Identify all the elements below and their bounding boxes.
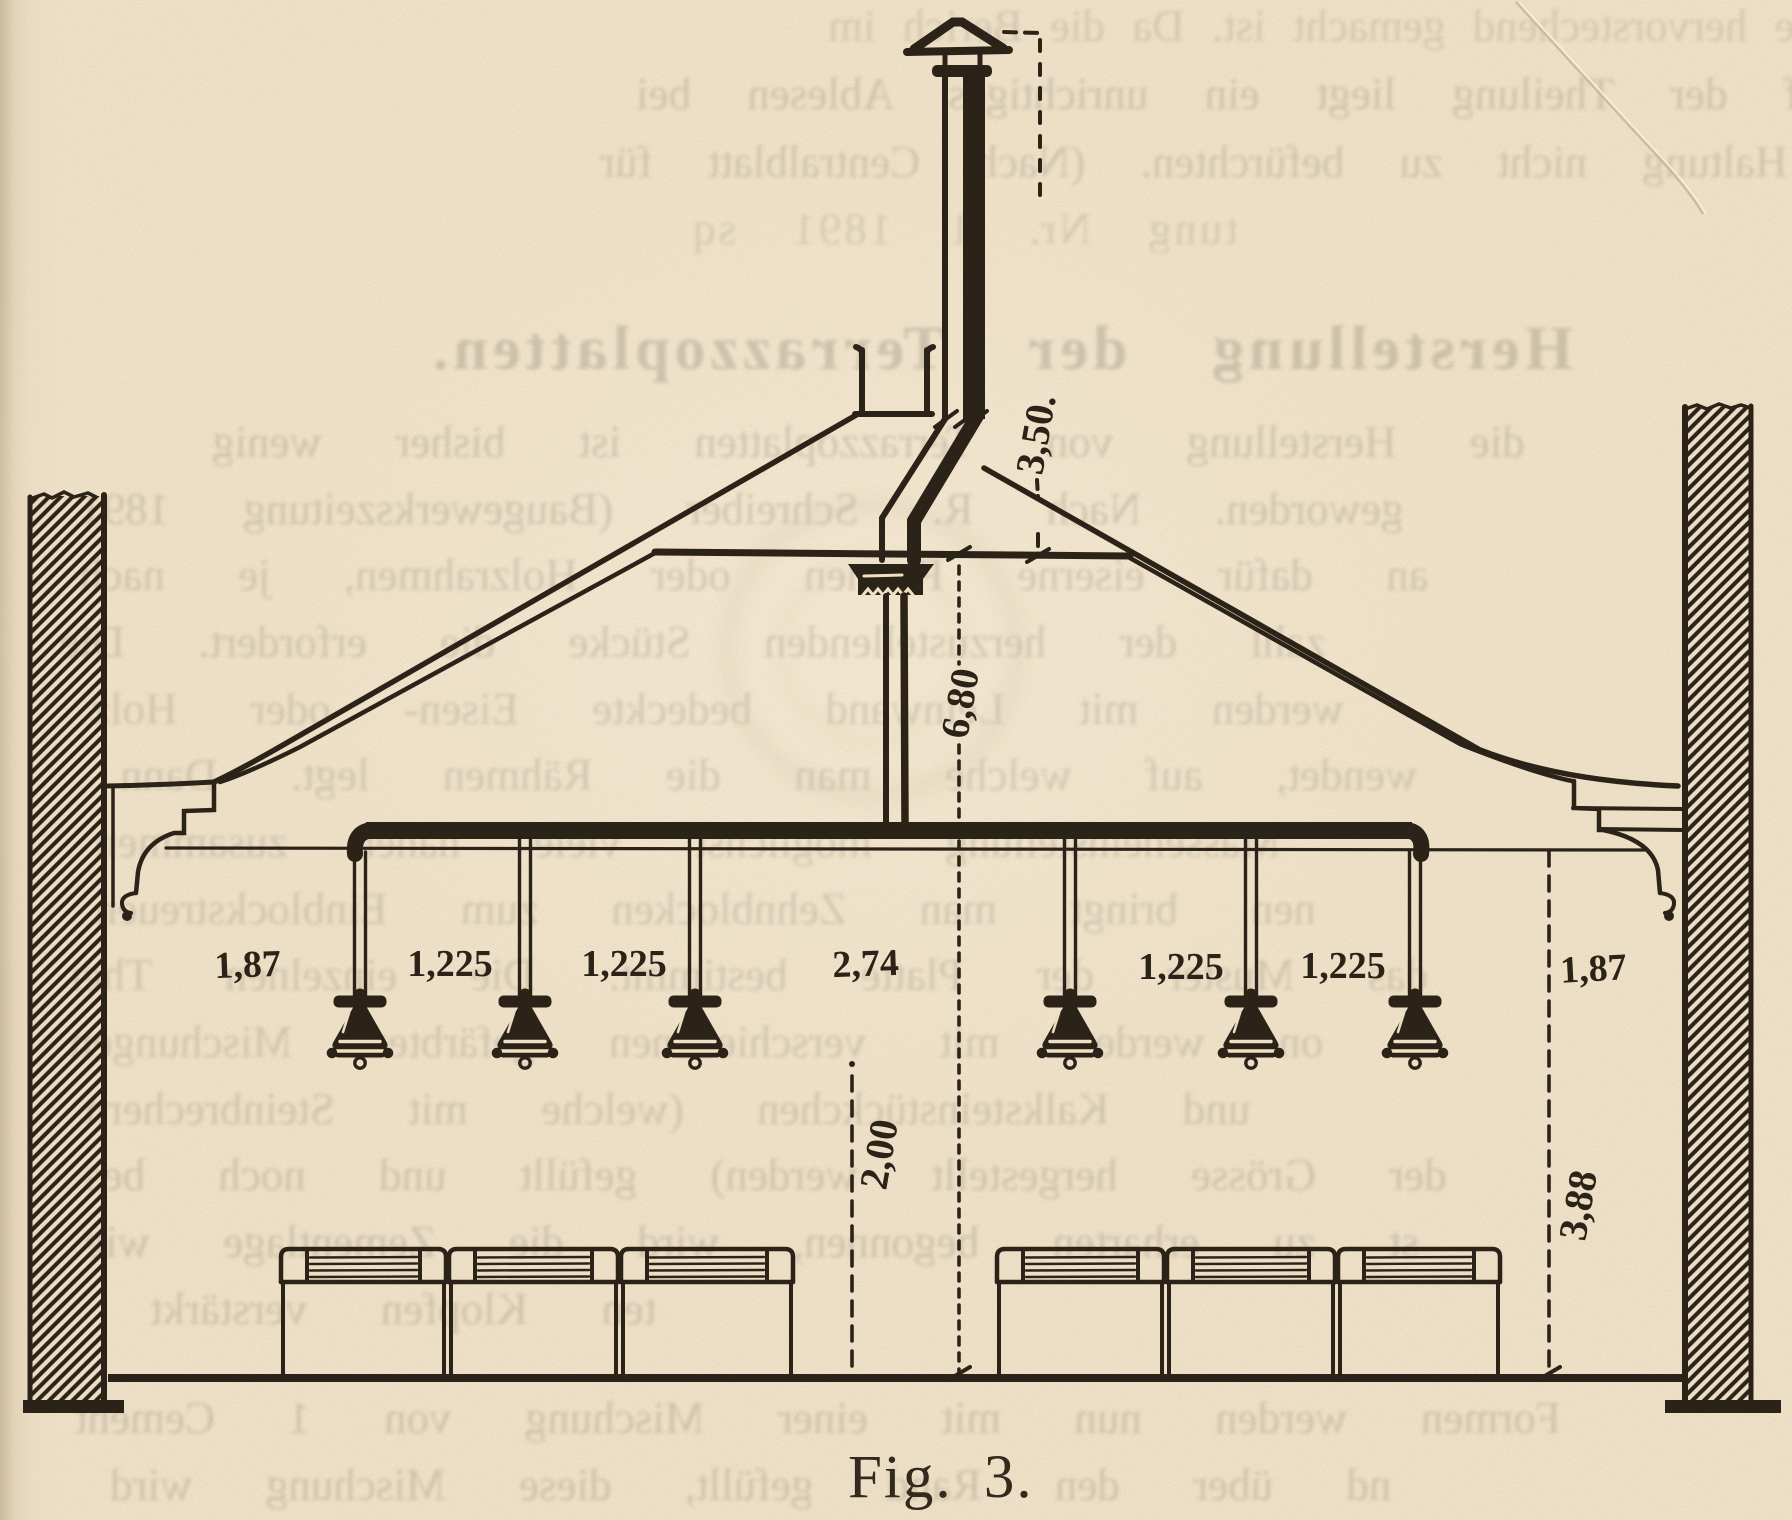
svg-text:1,87: 1,87 (1559, 946, 1628, 991)
svg-text:3,50.: 3,50. (1007, 391, 1065, 478)
svg-text:1,225: 1,225 (1138, 946, 1224, 988)
svg-text:2,00: 2,00 (851, 1116, 907, 1193)
svg-text:1,225: 1,225 (407, 943, 493, 985)
svg-text:3,88: 3,88 (1550, 1167, 1606, 1244)
svg-text:6,80: 6,80 (932, 665, 988, 742)
svg-text:1,225: 1,225 (1300, 945, 1386, 987)
svg-text:2,74: 2,74 (832, 942, 900, 986)
svg-text:Fig. 3.: Fig. 3. (848, 1444, 1034, 1511)
svg-text:1,225: 1,225 (581, 943, 667, 985)
svg-text:1,87: 1,87 (214, 943, 282, 987)
